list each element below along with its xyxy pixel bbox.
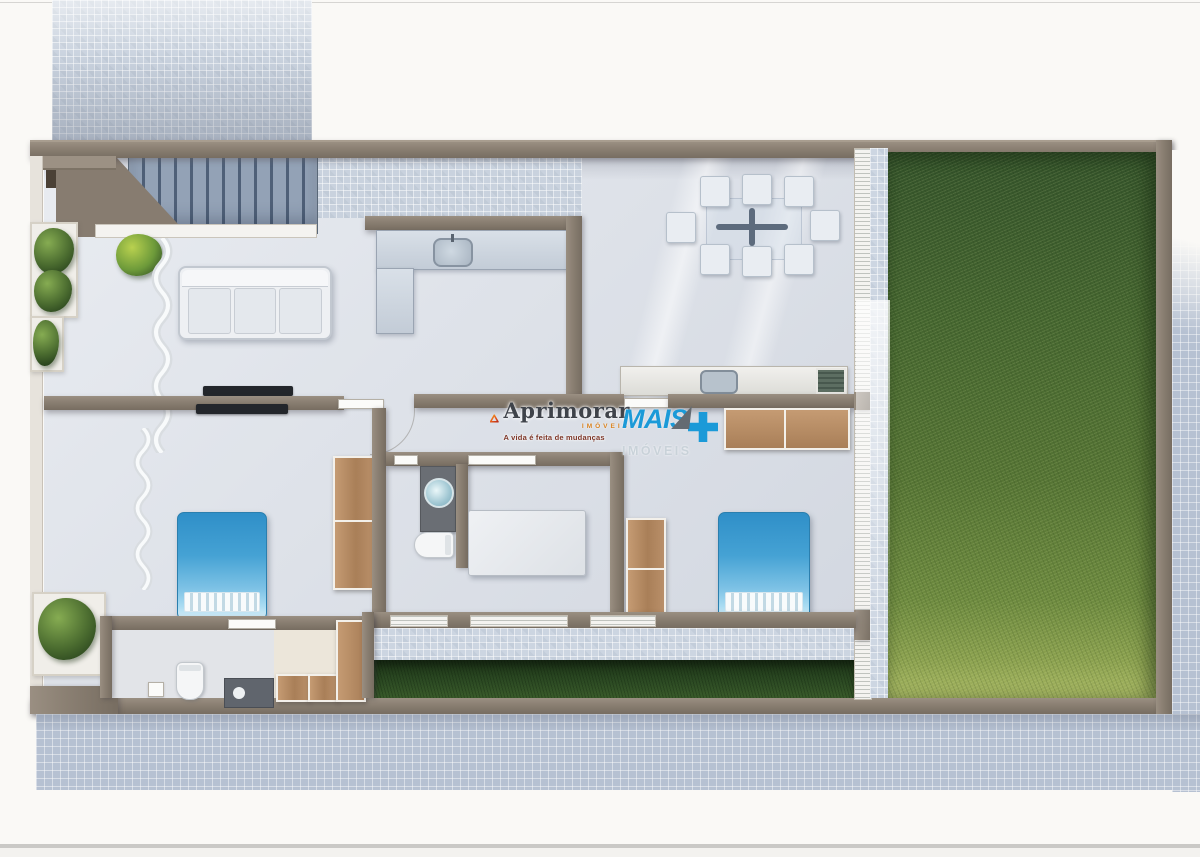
shower [224, 678, 274, 708]
sofa-cushion [279, 288, 322, 334]
sofa-cushions [188, 288, 322, 334]
wardrobe-bedroom-right-west [626, 518, 666, 622]
page-bottom-margin [0, 848, 1200, 857]
wall-bath-center-east [456, 464, 468, 568]
terrace-tiles [315, 148, 582, 218]
window-south-3 [590, 615, 656, 627]
window-south-1 [390, 615, 448, 627]
entry-door [46, 168, 56, 188]
dining-chair [700, 176, 730, 207]
toilet-bottom [176, 662, 204, 700]
bed-middle-white [468, 510, 586, 576]
closet-cabinet-1 [276, 674, 310, 702]
wall-right [1156, 140, 1172, 714]
floor-drain [148, 682, 164, 697]
aprimorar-imoveis-text: IMÓVEIS [504, 423, 630, 430]
floor-plan-render: Aprimorar IMÓVEIS A vida é feita de muda… [0, 0, 1200, 857]
wall-east-seg2 [854, 610, 870, 640]
dining-chair [784, 176, 814, 207]
dining-chair [666, 212, 696, 243]
kitchen-faucet [451, 234, 454, 242]
wardrobe-divider [335, 520, 373, 522]
watermark-aprimorar: Aprimorar IMÓVEIS A vida é feita de muda… [490, 400, 630, 442]
bbq-sink [700, 370, 738, 394]
kitchen-counter-leg [376, 268, 414, 334]
aprimorar-text-block: Aprimorar IMÓVEIS A vida é feita de muda… [504, 400, 630, 442]
bed-right-foot [725, 592, 802, 612]
tv-living [203, 386, 293, 396]
mais-imoveis-text: IMÓVEIS [622, 444, 752, 458]
sidewalk-right [1172, 150, 1200, 792]
wall-closet-east [362, 612, 374, 698]
door-bath-center [394, 455, 418, 465]
washbasin [424, 478, 454, 508]
curtain-living [150, 238, 174, 453]
dining-chair [742, 246, 772, 277]
backyard-lawn [888, 152, 1156, 698]
aprimorar-tagline-text: A vida é feita de mudanças [504, 433, 630, 442]
mais-logo-row: MAIS [622, 406, 752, 442]
sofa-cushion [234, 288, 277, 334]
sidewalk-bottom [36, 714, 1200, 790]
aprimorar-brand-text: Aprimorar [504, 400, 630, 421]
bed-left-foot [184, 592, 260, 612]
wall-bedroom-left-east [372, 408, 386, 628]
wardrobe-bedroom-left [333, 456, 375, 590]
sofa-cushion [188, 288, 231, 334]
sofa [178, 266, 332, 340]
tv-bedroom-left [196, 404, 288, 414]
side-yard-tiles [374, 628, 854, 662]
bbq-grill [816, 368, 846, 394]
wardrobe-divider [784, 410, 786, 448]
wall-kitchen-right [566, 216, 582, 408]
dining-chair [700, 244, 730, 275]
wardrobe-divider [628, 568, 664, 570]
door-bath-bottom [228, 619, 276, 629]
toilet-tank [445, 535, 451, 555]
wall-room-middle-east [610, 452, 624, 628]
east-walkway-tiles [870, 148, 888, 698]
watermark-mais: MAIS IMÓVEIS [622, 406, 752, 458]
toilet-tank [179, 665, 201, 671]
dining-table-base-v [749, 208, 755, 246]
door-room-middle [468, 455, 536, 465]
side-yard-grass [374, 660, 854, 698]
aprimorar-triangle-icon [490, 404, 499, 433]
dining-chair [784, 244, 814, 275]
dining-chair [742, 174, 772, 205]
wall-east-seg1 [854, 392, 870, 410]
closet-cabinet-2 [308, 674, 338, 702]
bed-right [718, 512, 810, 620]
wall-living-south [44, 396, 344, 410]
curtain-bedroom-left [132, 428, 154, 590]
wall-kitchen-top [365, 216, 566, 230]
driveway-tiles [52, 0, 312, 144]
wall-bath-bottom-west [100, 616, 112, 698]
bed-left [177, 512, 267, 620]
shower-drain [233, 687, 245, 699]
kitchen-sink [433, 238, 473, 267]
wall-bottom [30, 698, 1172, 714]
toilet-center [414, 532, 454, 558]
sofa-backrest [182, 270, 328, 287]
dining-chair [810, 210, 840, 241]
window-south-2 [470, 615, 568, 627]
